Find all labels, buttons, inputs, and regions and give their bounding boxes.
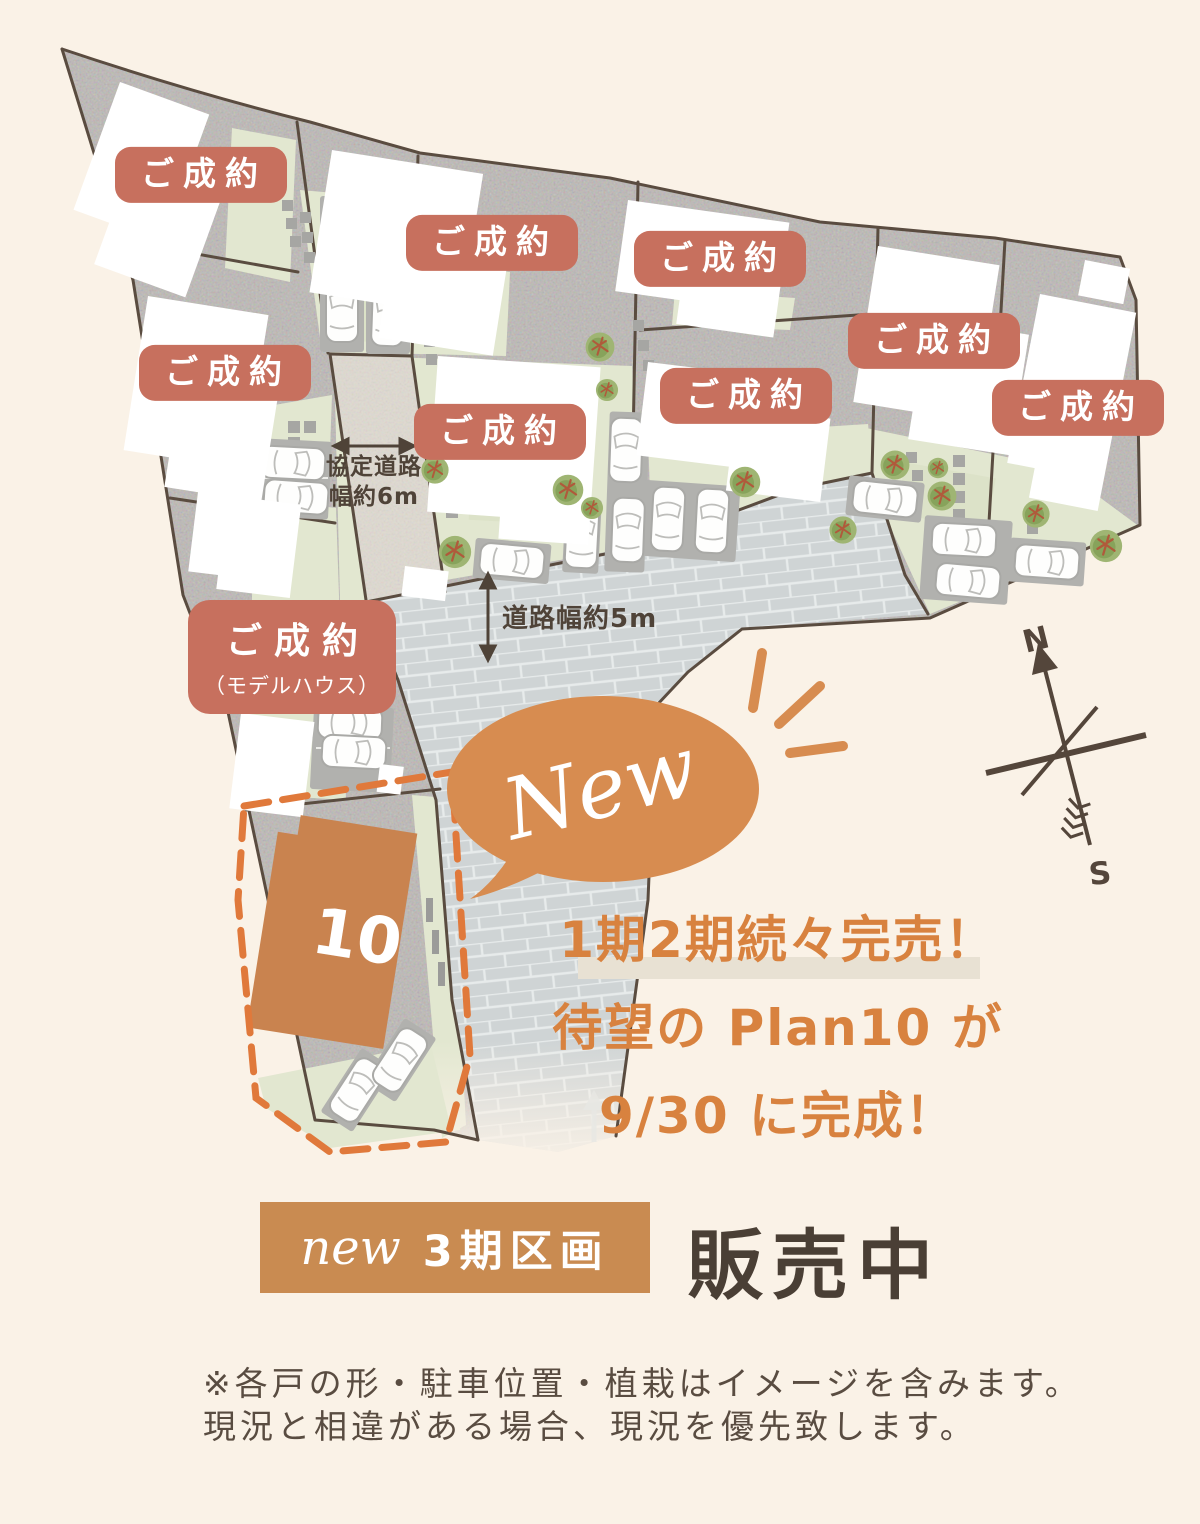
- road-label-kyotei-line2: 幅約6m: [326, 482, 422, 512]
- promo-line-1: 1期2期続々完売！: [552, 896, 1004, 984]
- sold-badge-4: ご成約: [414, 404, 586, 460]
- model-house-badge: ご成約 （モデルハウス）: [188, 600, 396, 714]
- sold-badge-2: ご成約: [139, 345, 311, 401]
- new-phase-badge: new 3期区画: [260, 1202, 650, 1293]
- burst-rays: [753, 653, 843, 753]
- disclaimer-line-2: 現況と相違がある場合、現況を優先致します。: [203, 1405, 1082, 1448]
- sold-badge-6: ご成約: [660, 368, 832, 424]
- road-label-kyotei-line1: 協定道路: [326, 452, 422, 482]
- promo-line-3: 9/30 に完成！: [552, 1072, 1004, 1160]
- site-plan-flyer: ご成約 ご成約 ご成約 ご成約 ご成約 ご成約 ご成約 ご成約 ご成約 （モデル…: [0, 0, 1200, 1524]
- sold-badge-3: ご成約: [406, 215, 578, 271]
- model-house-badge-line1: ご成約: [204, 612, 380, 664]
- lot10-number: 10: [307, 894, 407, 981]
- status-label: 販売中: [687, 1204, 942, 1314]
- disclaimer-line-1: ※各戸の形・駐車位置・植栽はイメージを含みます。: [203, 1362, 1082, 1405]
- promo-headline: 1期2期続々完売！ 待望の Plan10 が 9/30 に完成！: [552, 896, 1004, 1160]
- sold-badge-7: ご成約: [848, 313, 1020, 369]
- model-house-badge-line2: （モデルハウス）: [204, 670, 380, 700]
- compass-south-label: S: [1087, 855, 1113, 893]
- promo-line-2: 待望の Plan10 が: [552, 984, 1004, 1072]
- house-footprint: [401, 566, 448, 601]
- sold-badge-8: ご成約: [992, 380, 1164, 436]
- compass: [986, 643, 1146, 845]
- road-label-5m: 道路幅約5m: [502, 598, 657, 635]
- new-script-label: new: [300, 1220, 400, 1276]
- disclaimer: ※各戸の形・駐車位置・植栽はイメージを含みます。 現況と相違がある場合、現況を優…: [203, 1362, 1082, 1448]
- sold-badge-1: ご成約: [115, 147, 287, 203]
- road-label-kyotei: 協定道路 幅約6m: [326, 452, 422, 512]
- sold-badge-5: ご成約: [634, 231, 806, 287]
- phase-label: 3期区画: [423, 1217, 610, 1279]
